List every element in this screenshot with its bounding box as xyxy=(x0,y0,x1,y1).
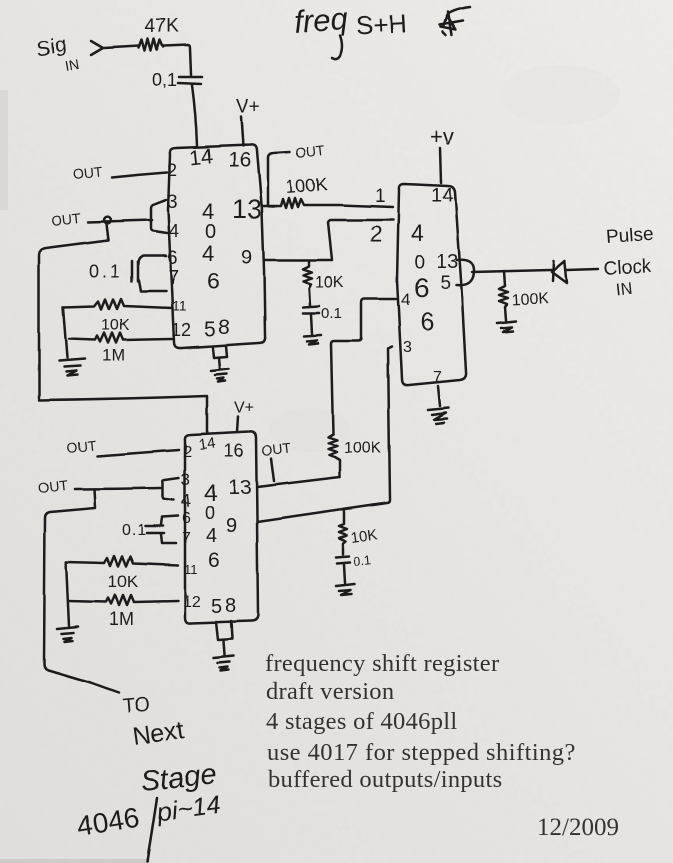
svg-text:6: 6 xyxy=(208,549,220,572)
svg-text:TO: TO xyxy=(122,694,151,718)
svg-text:buffered outputs/inputs: buffered outputs/inputs xyxy=(268,766,502,793)
svg-text:1: 1 xyxy=(375,186,386,207)
svg-text:12/2009: 12/2009 xyxy=(537,814,619,841)
svg-text:4: 4 xyxy=(411,220,424,246)
svg-text:1M: 1M xyxy=(109,609,134,629)
svg-text:9: 9 xyxy=(241,247,252,269)
svg-text:OUT: OUT xyxy=(72,163,104,182)
svg-text:+v: +v xyxy=(430,124,454,149)
svg-text:OUT: OUT xyxy=(295,142,327,161)
svg-text:0.1: 0.1 xyxy=(321,305,342,322)
svg-text:11: 11 xyxy=(172,298,187,314)
svg-text:OUT: OUT xyxy=(66,437,98,456)
svg-text:5: 5 xyxy=(211,596,222,618)
svg-text:7: 7 xyxy=(433,369,442,386)
svg-text:2: 2 xyxy=(370,221,383,247)
svg-text:Pulse: Pulse xyxy=(605,224,654,248)
svg-text:Clock: Clock xyxy=(603,256,652,280)
svg-text:0: 0 xyxy=(205,221,216,243)
svg-text:OUT: OUT xyxy=(261,440,293,459)
svg-text:100K: 100K xyxy=(285,174,328,197)
svg-text:2: 2 xyxy=(167,160,177,180)
svg-text:0,1: 0,1 xyxy=(152,70,177,90)
svg-text:13: 13 xyxy=(436,251,458,273)
svg-text:3: 3 xyxy=(167,192,178,213)
svg-text:2: 2 xyxy=(183,444,192,461)
svg-text:OUT: OUT xyxy=(38,477,70,496)
svg-text:6: 6 xyxy=(182,510,191,527)
svg-text:5: 5 xyxy=(204,318,216,341)
svg-text:47K: 47K xyxy=(145,16,179,37)
svg-text:V+: V+ xyxy=(236,97,260,118)
svg-text:S+H: S+H xyxy=(355,8,408,41)
svg-text:draft version: draft version xyxy=(266,678,394,705)
svg-text:8: 8 xyxy=(225,595,236,617)
svg-text:5: 5 xyxy=(440,273,451,294)
svg-text:11: 11 xyxy=(184,562,198,577)
svg-text:14: 14 xyxy=(188,145,214,170)
svg-text:3: 3 xyxy=(181,470,190,489)
svg-text:freq: freq xyxy=(293,1,349,40)
svg-text:use 4017 for stepped shifting?: use 4017 for stepped shifting? xyxy=(267,739,576,766)
svg-text:13: 13 xyxy=(232,194,262,224)
svg-text:4: 4 xyxy=(181,491,191,511)
svg-text:V+: V+ xyxy=(234,400,254,417)
svg-text:12: 12 xyxy=(171,320,191,340)
svg-text:IN: IN xyxy=(614,278,633,299)
svg-text:0: 0 xyxy=(205,503,215,523)
svg-text:12: 12 xyxy=(183,594,201,611)
svg-text:16: 16 xyxy=(223,441,243,461)
svg-text:6: 6 xyxy=(414,273,429,303)
svg-text:14: 14 xyxy=(431,185,453,207)
svg-text:6: 6 xyxy=(420,308,434,336)
svg-text:14: 14 xyxy=(197,435,216,454)
svg-text:0.1: 0.1 xyxy=(89,261,123,281)
svg-text:13: 13 xyxy=(228,476,251,499)
svg-text:8: 8 xyxy=(218,316,230,339)
svg-text:0.1: 0.1 xyxy=(122,522,147,539)
svg-text:100K: 100K xyxy=(511,290,550,309)
svg-text:4 stages of 4046pll: 4 stages of 4046pll xyxy=(266,708,457,735)
svg-text:4: 4 xyxy=(206,525,217,547)
svg-text:16: 16 xyxy=(228,149,251,172)
svg-text:7: 7 xyxy=(182,530,191,547)
svg-text:10K: 10K xyxy=(315,274,344,291)
svg-text:0: 0 xyxy=(414,252,425,273)
svg-text:OUT: OUT xyxy=(51,210,83,229)
svg-text:frequency shift register: frequency shift register xyxy=(265,650,499,677)
svg-text:1M: 1M xyxy=(102,346,126,365)
svg-text:6: 6 xyxy=(167,248,178,269)
svg-text:4: 4 xyxy=(202,241,214,266)
svg-text:0.1: 0.1 xyxy=(353,552,373,569)
svg-text:3: 3 xyxy=(403,339,412,356)
svg-text:10K: 10K xyxy=(101,317,130,334)
svg-text:10K: 10K xyxy=(108,572,139,591)
svg-text:7: 7 xyxy=(168,267,179,289)
svg-text:9: 9 xyxy=(226,515,237,537)
svg-text:IN: IN xyxy=(64,56,81,74)
svg-text:4: 4 xyxy=(169,221,179,241)
svg-text:6: 6 xyxy=(207,268,220,294)
svg-text:100K: 100K xyxy=(344,440,382,457)
svg-text:4: 4 xyxy=(401,290,410,309)
